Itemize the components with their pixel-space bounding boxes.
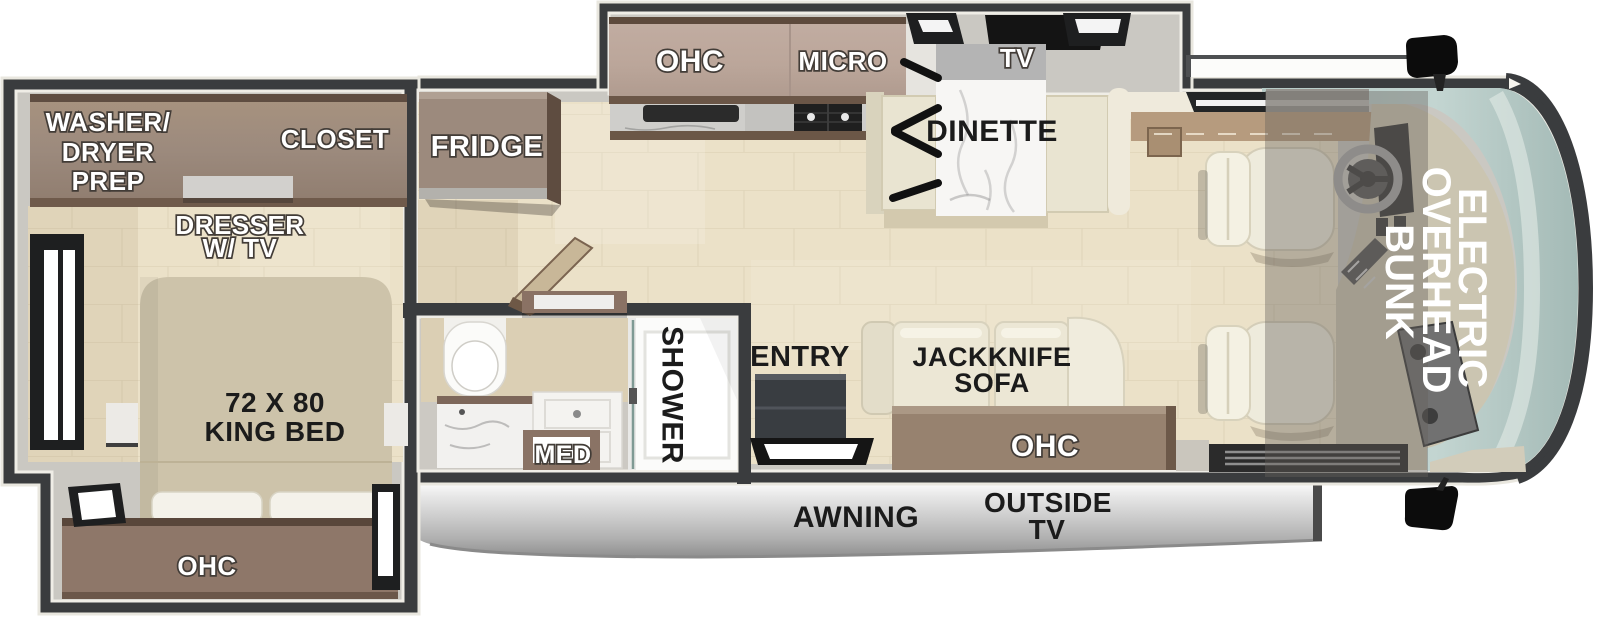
svg-text:OHC: OHC [656, 45, 724, 78]
svg-text:WASHER/: WASHER/ [46, 107, 171, 137]
svg-text:KING BED: KING BED [205, 416, 346, 447]
svg-text:TV: TV [1000, 43, 1034, 73]
svg-text:PREP: PREP [72, 166, 145, 196]
svg-text:DRYER: DRYER [62, 137, 155, 167]
svg-text:TV: TV [1029, 514, 1066, 545]
svg-text:FRIDGE: FRIDGE [431, 131, 544, 163]
svg-text:ENTRY: ENTRY [750, 341, 850, 373]
svg-text:ELECTRIC: ELECTRIC [1450, 188, 1494, 388]
svg-text:W/ TV: W/ TV [203, 233, 278, 263]
svg-text:DINETTE: DINETTE [926, 115, 1058, 148]
svg-text:MED: MED [534, 441, 591, 469]
svg-text:OHC: OHC [1011, 430, 1079, 463]
svg-text:CLOSET: CLOSET [281, 124, 389, 154]
svg-text:72 X 80: 72 X 80 [225, 387, 325, 418]
svg-text:MICRO: MICRO [798, 46, 887, 76]
svg-text:SHOWER: SHOWER [656, 326, 689, 464]
svg-text:AWNING: AWNING [793, 501, 919, 534]
svg-text:SOFA: SOFA [954, 368, 1030, 398]
svg-text:OHC: OHC [177, 551, 236, 581]
